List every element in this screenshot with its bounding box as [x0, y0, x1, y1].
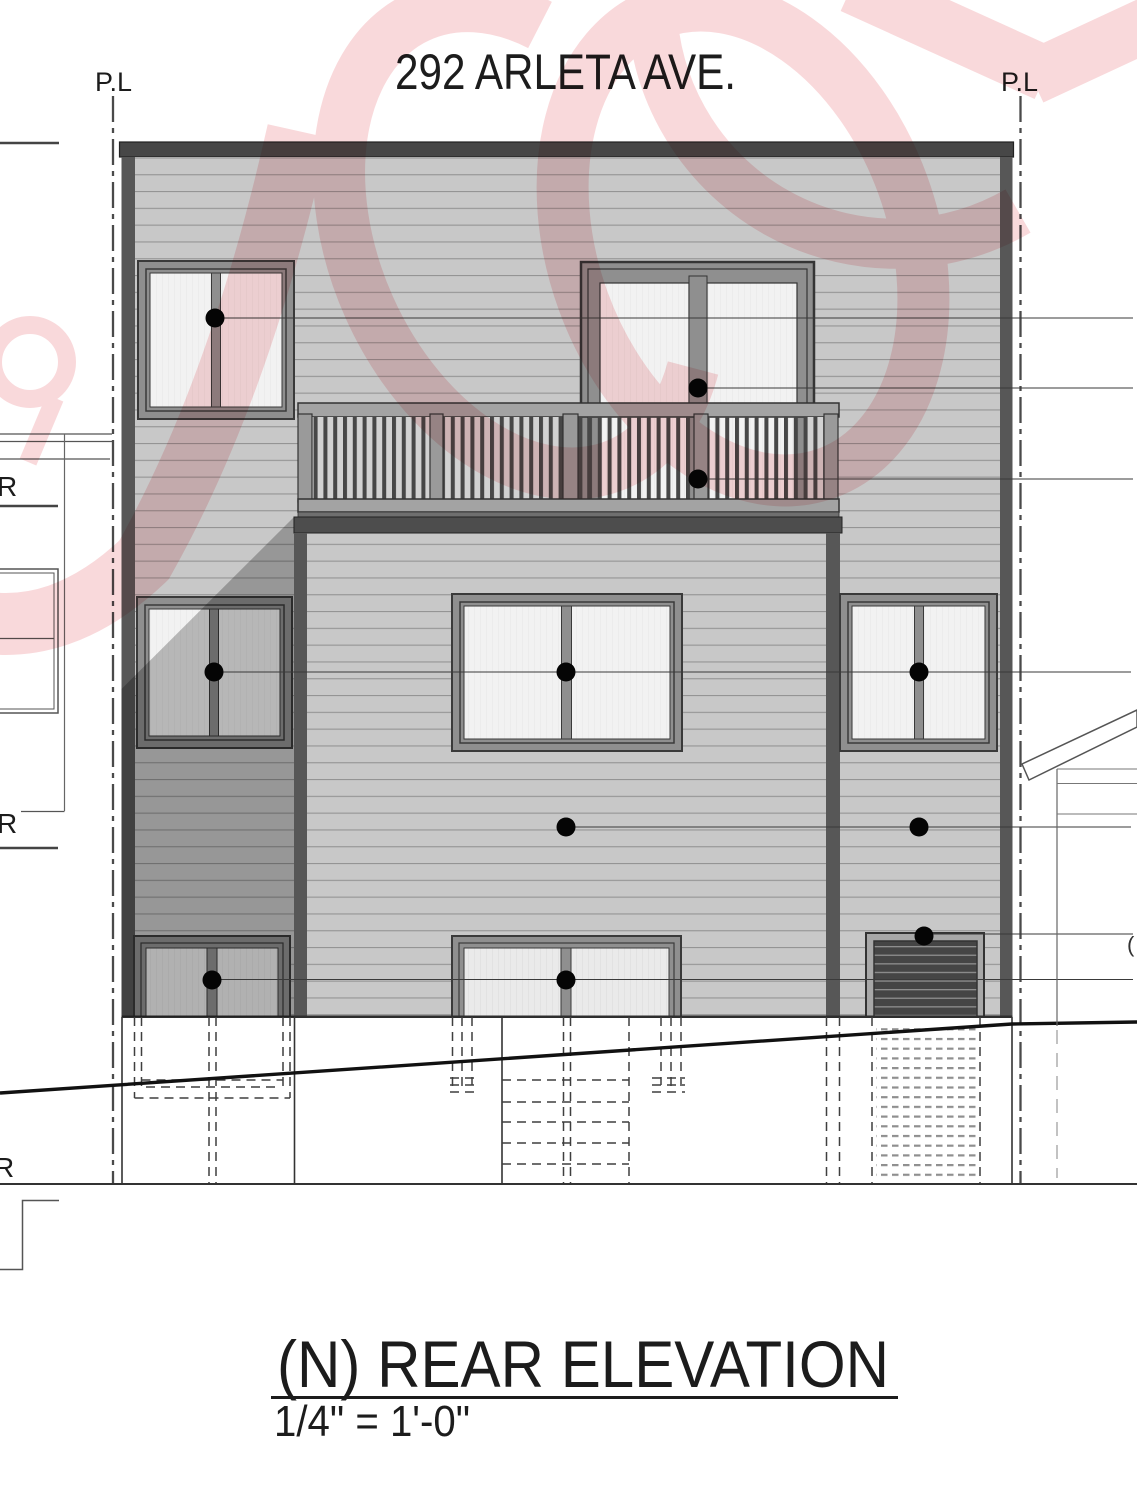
- svg-text:1/4" = 1'-0": 1/4" = 1'-0": [274, 1397, 470, 1446]
- svg-text:(N) REAR ELEVATION: (N) REAR ELEVATION: [277, 1327, 889, 1401]
- svg-text:P.L: P.L: [95, 67, 132, 97]
- svg-text:R: R: [0, 808, 17, 839]
- svg-text:R: R: [0, 471, 17, 502]
- svg-text:(: (: [1127, 932, 1135, 957]
- svg-text:R: R: [0, 1152, 14, 1183]
